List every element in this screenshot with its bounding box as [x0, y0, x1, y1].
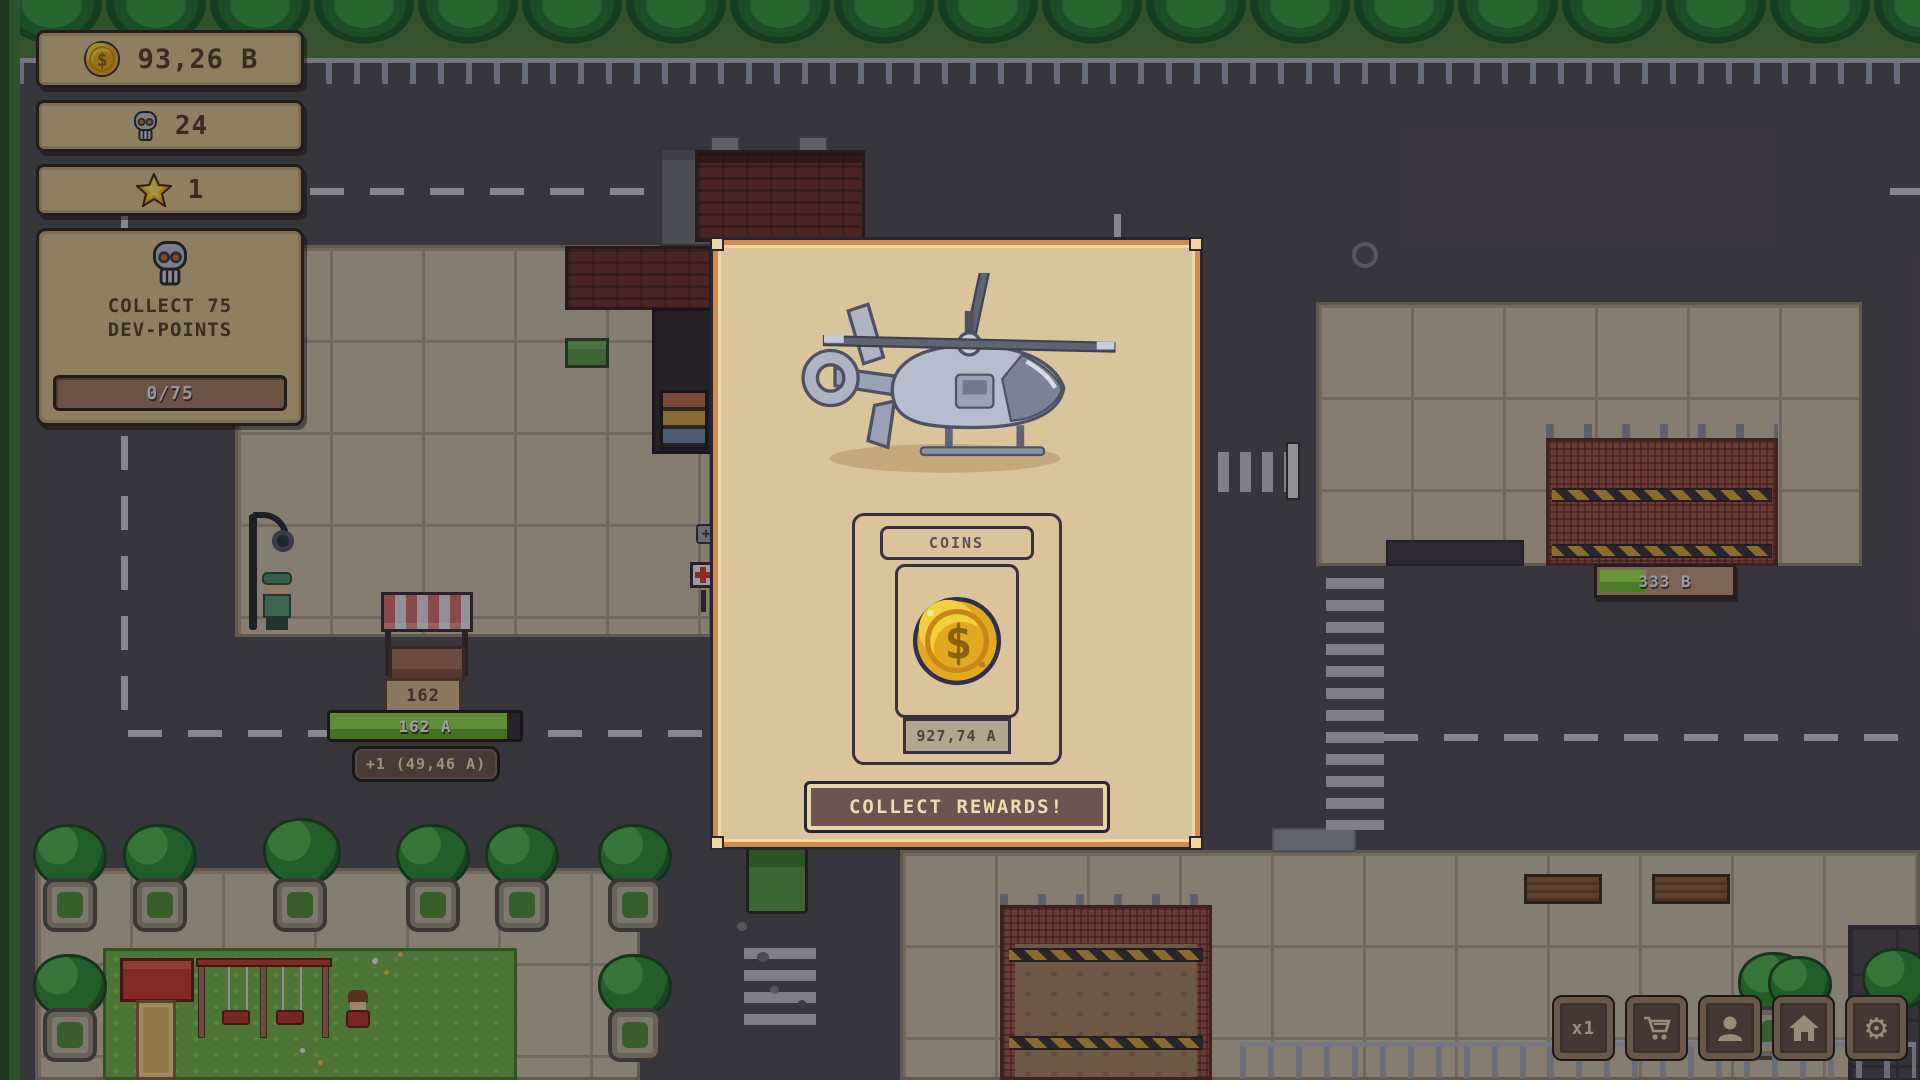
svg-text:$: $ — [944, 616, 972, 671]
modal-corner-knob — [710, 237, 724, 251]
modal-corner-knob — [1189, 237, 1203, 251]
collect-rewards-label: COLLECT REWARDS! — [849, 796, 1064, 818]
reward-icon-box: $ — [895, 564, 1019, 718]
reward-card: COINS $ 927,74 A — [852, 513, 1062, 765]
reward-type-label: COINS — [929, 534, 984, 552]
game-screen: + — [0, 0, 1920, 1080]
modal-corner-knob — [710, 836, 724, 850]
helicopter-illustration — [791, 273, 1121, 483]
modal-corner-knob — [1189, 836, 1203, 850]
reward-type-pill: COINS — [880, 526, 1034, 560]
coin-icon: $ — [910, 594, 1004, 688]
collect-rewards-button[interactable]: COLLECT REWARDS! — [804, 781, 1110, 833]
reward-value: 927,74 A — [916, 727, 996, 745]
reward-modal: COINS $ 927,74 A COLLECT REWARDS! — [713, 240, 1200, 847]
reward-value-box: 927,74 A — [903, 718, 1011, 754]
